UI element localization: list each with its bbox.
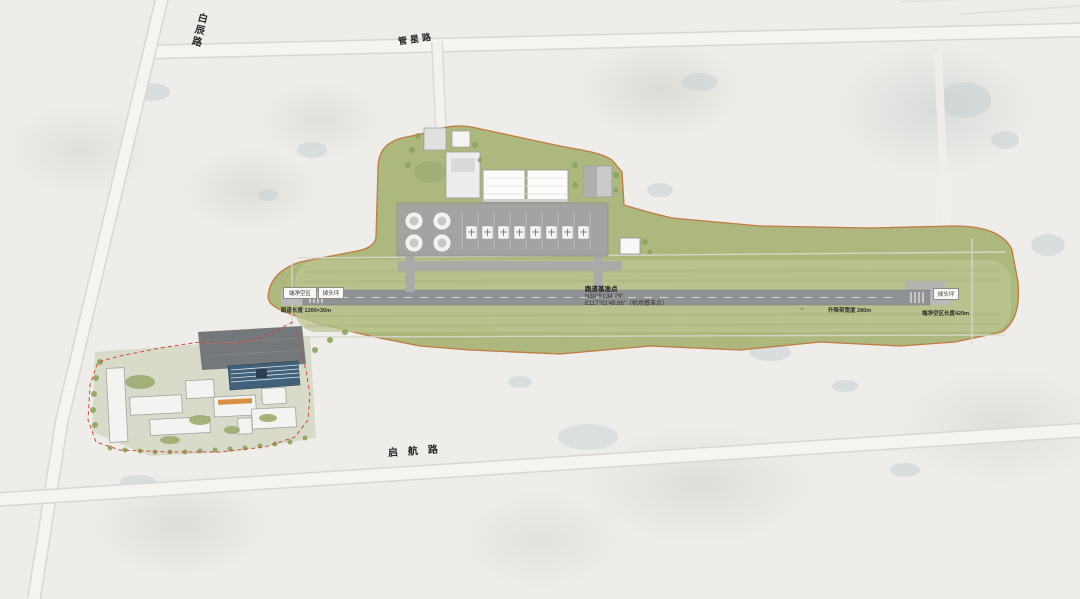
terminal-building-detail [451,158,475,172]
campus-building [262,387,287,404]
helipad-icon [405,212,423,230]
aircraft-stand-icon [578,226,589,239]
hangar-doors [484,199,567,202]
terminal-north-building [424,128,446,150]
aircraft-stand-icon [562,226,573,239]
campus-zone [88,322,348,456]
strip-width-note: 升降带宽度 280m [828,306,871,314]
aircraft-stand-icon [514,226,525,239]
runway-left-tag-2: 掉头坪 [318,287,344,299]
aircraft-stand-icon [498,226,509,239]
road-right-faint [938,50,946,235]
road-terminal-entrance-surface [437,42,441,130]
runway-annotation-lon: E117°02′48.66″（机场基准点） [585,301,668,308]
runway-left-note: 跑道长度 1200×30m [281,306,331,314]
aircraft-stand-icon [482,226,493,239]
terminal-north-building-2 [452,131,470,147]
runway-annotation: 跑道基准点 N30°51′34.29″ E117°02′48.66″（机场基准点… [585,286,668,308]
strip-width-arrow: → [798,305,805,312]
apron-area [397,203,608,256]
terminal-landscape [414,161,446,183]
runway-left-tag-1: 端净空区 [283,287,317,299]
road-topright-2 [900,0,1080,2]
helipad-icon [405,234,423,252]
road-top [150,30,1080,52]
airport-site-plan: 白辰路 管星路 启航路 跑道基准点 N30°51′34.29″ E117°02′… [0,0,1080,599]
facility-building [620,238,640,254]
site-plan-graphics [0,0,1080,599]
campus-building [106,368,128,443]
helipad-icon [433,234,451,252]
runway-right-note: 端净空区长度420m [922,309,969,317]
aircraft-stand-icon [530,226,541,239]
aircraft-stand-icon [466,226,477,239]
road-left [34,0,163,599]
campus-building [130,395,183,416]
support-building-dark-half [584,166,597,197]
campus-building [186,379,215,398]
road-topright-1 [960,6,1080,14]
aircraft-stand-icon [546,226,557,239]
runway-right-tag: 掉头坪 [933,288,959,300]
campus-building [238,418,253,435]
blue-roof-building [228,361,300,390]
helipad-icon [433,212,451,230]
runway-annotation-title: 跑道基准点 [585,286,668,293]
